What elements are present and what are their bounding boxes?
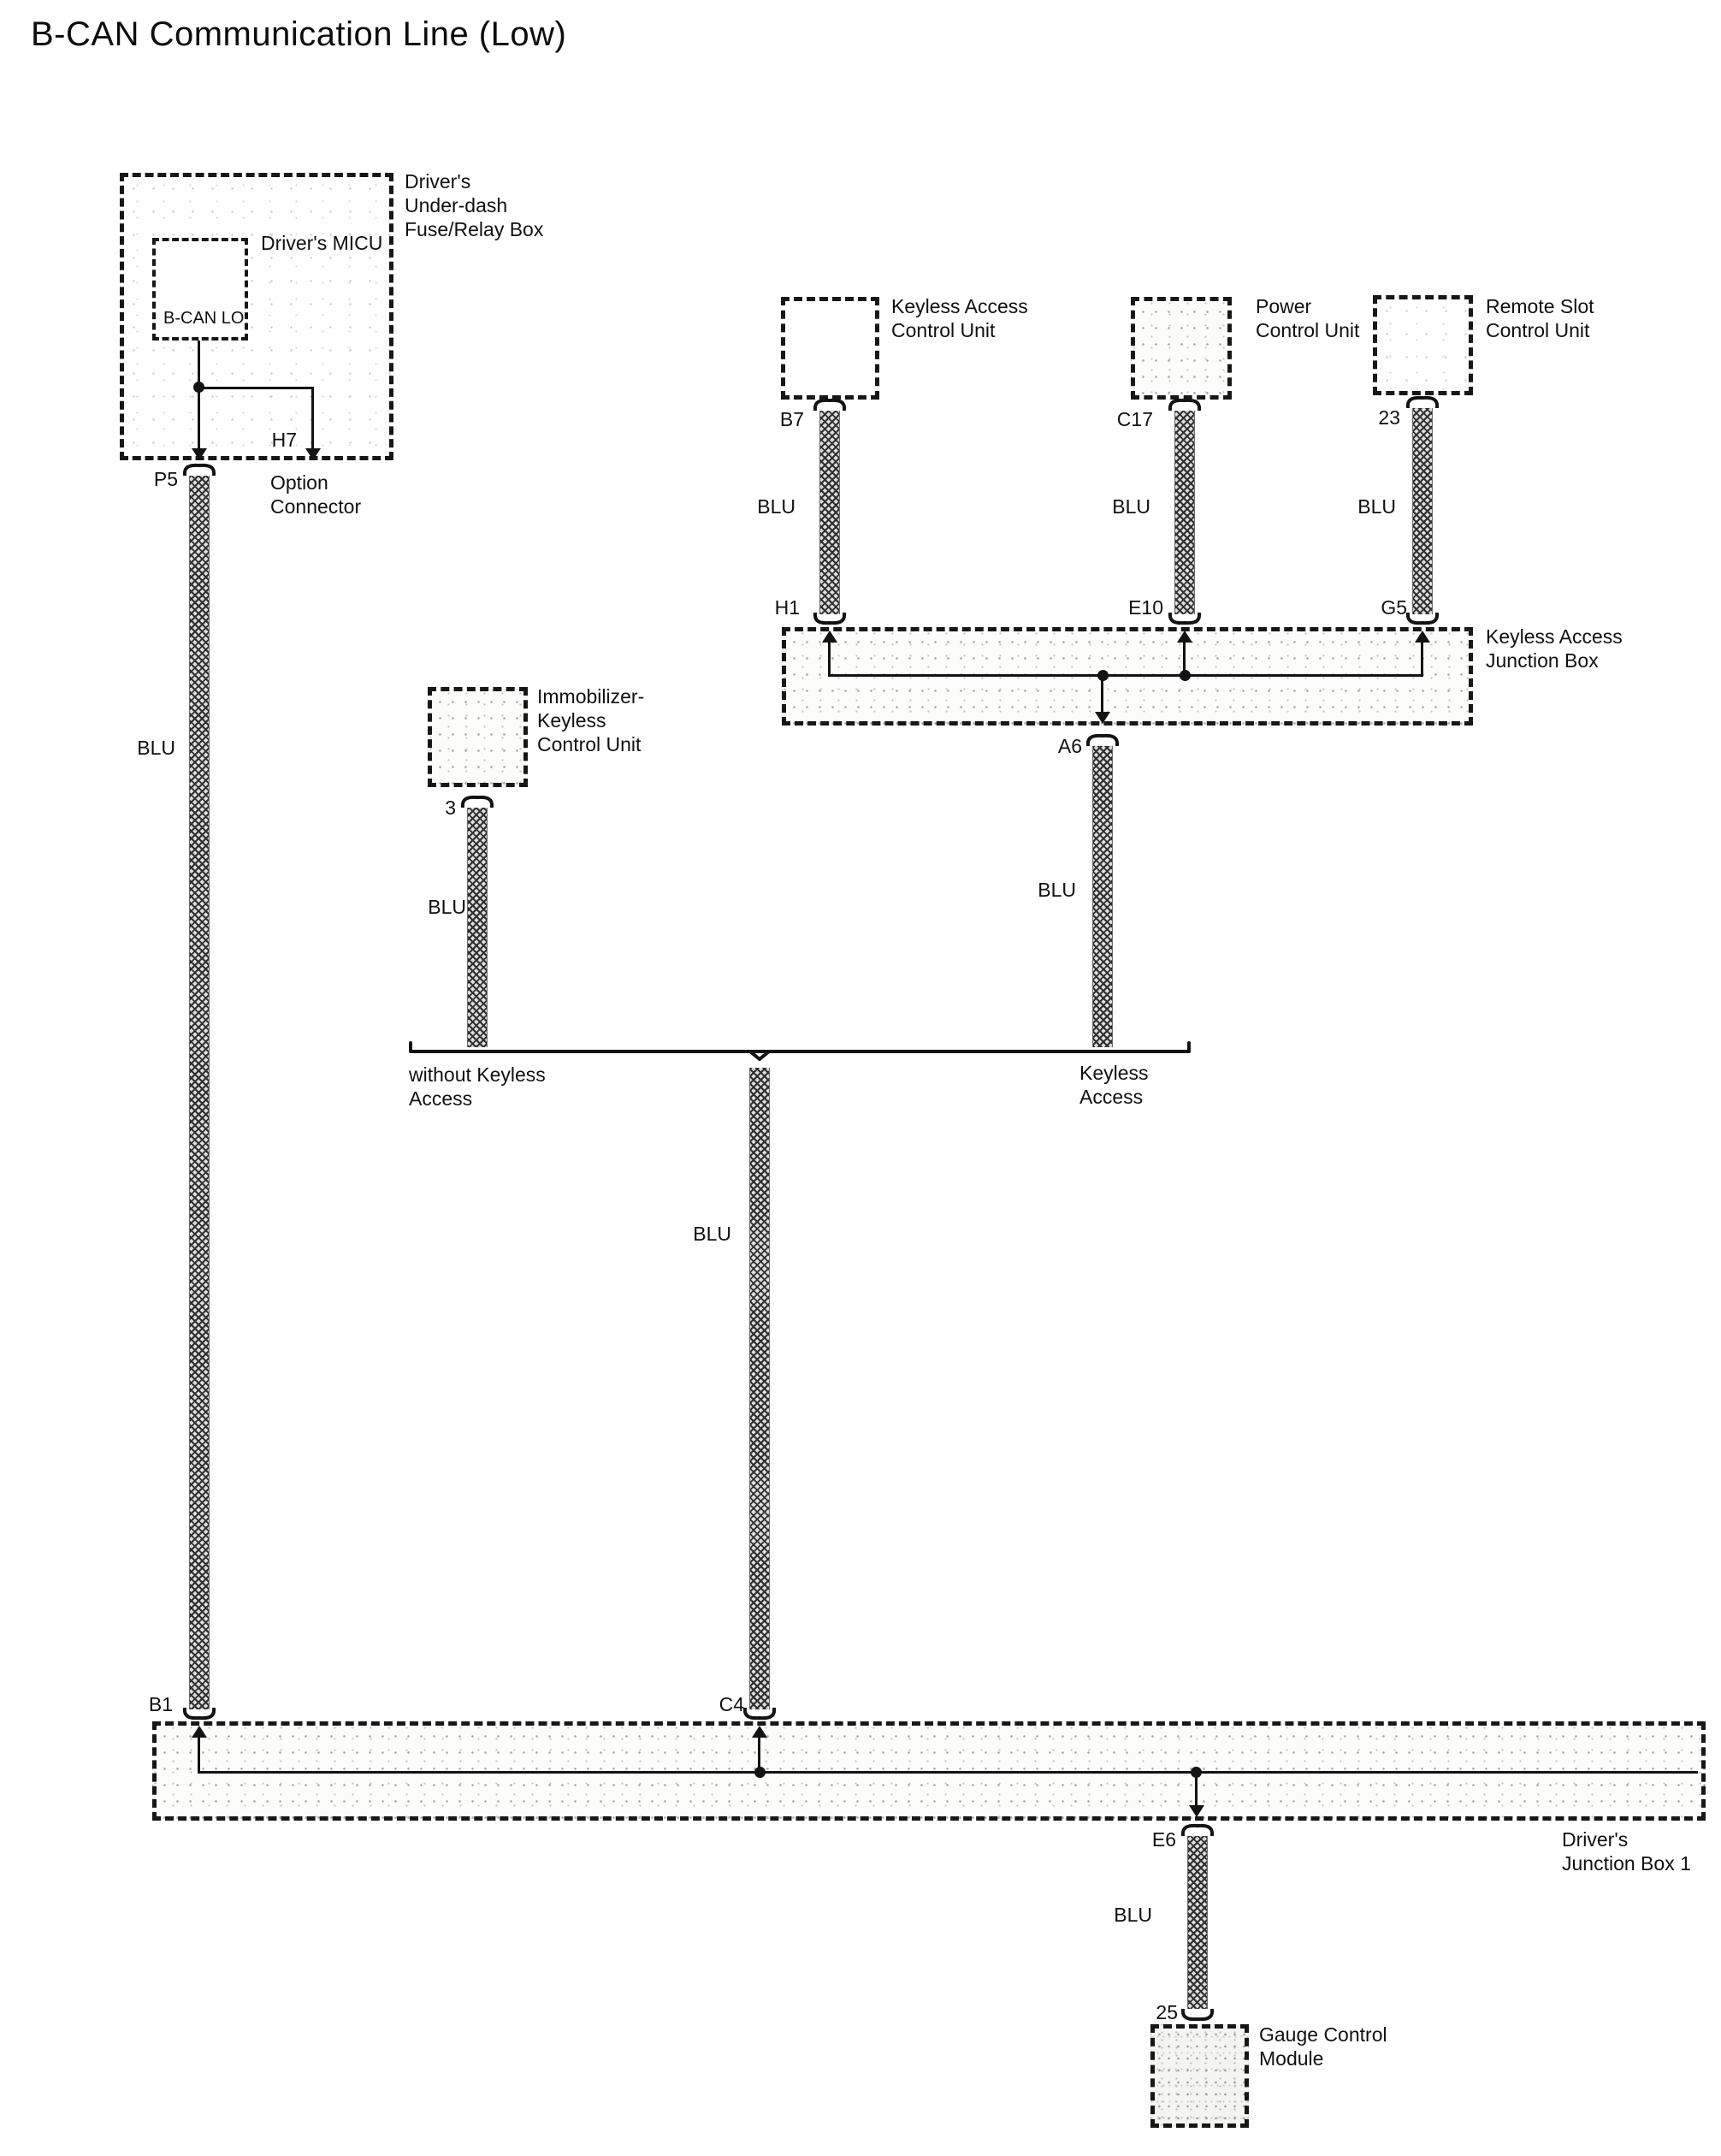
pin-label-p5: P5 bbox=[154, 467, 178, 491]
option-connector-label: Option Connector bbox=[270, 471, 361, 518]
drivers-micu-label: Driver's MICU bbox=[261, 231, 382, 255]
connector-crimp-icon bbox=[1180, 2009, 1215, 2023]
wire-e6-to-25 bbox=[1187, 1836, 1208, 2009]
signal-line bbox=[198, 387, 314, 389]
gauge-control-module-label: Gauge Control Module bbox=[1259, 2023, 1387, 2070]
connector-crimp-icon bbox=[1168, 613, 1202, 626]
wire-a6-to-branch bbox=[1092, 746, 1113, 1047]
gauge-control-module-box bbox=[1150, 2024, 1249, 2128]
pin-label-g5: G5 bbox=[1381, 595, 1407, 619]
drivers-junction-box-1-label: Driver's Junction Box 1 bbox=[1562, 1827, 1691, 1875]
branch-bus-end-hook bbox=[409, 1041, 412, 1051]
power-cu-label: Power Control Unit bbox=[1256, 294, 1359, 342]
bcan-lo-label: B-CAN LO bbox=[163, 308, 244, 329]
pin-label-c17: C17 bbox=[1117, 407, 1153, 431]
branch-bus-line bbox=[409, 1050, 1191, 1053]
pin-label-3: 3 bbox=[445, 796, 456, 820]
signal-line bbox=[1101, 676, 1103, 714]
wire-color-label: BLU bbox=[1112, 495, 1150, 518]
page-title: B-CAN Communication Line (Low) bbox=[31, 15, 566, 54]
wire-p5-to-b1 bbox=[189, 476, 210, 1709]
power-cu-box bbox=[1131, 297, 1232, 400]
connector-crimp-icon bbox=[1085, 732, 1120, 746]
wire-color-label: BLU bbox=[693, 1222, 731, 1246]
connector-crimp-icon bbox=[813, 397, 847, 411]
branch-notch-icon bbox=[749, 1051, 770, 1061]
wire-color-label: BLU bbox=[1357, 495, 1396, 518]
wire-pin3-to-branch bbox=[467, 808, 488, 1047]
wire-b7-to-h1 bbox=[819, 411, 840, 614]
junction-dot bbox=[1180, 670, 1191, 681]
pin-label-e6: E6 bbox=[1152, 1827, 1176, 1851]
branch-bus-end-hook bbox=[1187, 1041, 1191, 1051]
pin-label-h1: H1 bbox=[775, 595, 800, 619]
pin-label-b1: B1 bbox=[149, 1692, 173, 1716]
signal-line bbox=[828, 674, 1423, 677]
signal-line bbox=[1421, 641, 1423, 677]
wire-color-label: BLU bbox=[1038, 878, 1076, 902]
remote-slot-cu-label: Remote Slot Control Unit bbox=[1486, 294, 1594, 342]
pin-label-25: 25 bbox=[1156, 2000, 1178, 2024]
keyless-access-cu-box bbox=[781, 297, 879, 400]
arrow-down-icon bbox=[305, 448, 321, 460]
pin-label-23: 23 bbox=[1378, 406, 1400, 429]
pin-label-a6: A6 bbox=[1058, 734, 1082, 758]
keyless-access-cu-label: Keyless Access Control Unit bbox=[891, 294, 1028, 342]
pin-label-h7: H7 bbox=[272, 428, 297, 452]
wire-color-label: BLU bbox=[1114, 1903, 1152, 1927]
signal-line bbox=[828, 641, 831, 677]
connector-crimp-icon bbox=[182, 462, 216, 476]
signal-line bbox=[198, 1736, 200, 1774]
wire-color-label: BLU bbox=[137, 736, 175, 760]
pin-label-b7: B7 bbox=[780, 407, 804, 431]
fuse-relay-box-label: Driver's Under-dash Fuse/Relay Box bbox=[405, 169, 543, 241]
pin-label-c4: C4 bbox=[719, 1692, 744, 1716]
connector-crimp-icon bbox=[1168, 397, 1202, 411]
immobilizer-keyless-cu-box bbox=[428, 687, 528, 787]
arrow-down-icon bbox=[1189, 1805, 1204, 1817]
signal-line bbox=[311, 387, 314, 450]
wire-color-label: BLU bbox=[757, 495, 795, 518]
wire-23-to-g5 bbox=[1412, 408, 1433, 614]
wire-branch-to-c4 bbox=[749, 1068, 770, 1709]
connector-crimp-icon bbox=[182, 1708, 216, 1721]
keyless-access-junction-box-label: Keyless Access Junction Box bbox=[1486, 625, 1623, 672]
connector-crimp-icon bbox=[1405, 394, 1440, 408]
keyless-access-label: Keyless Access bbox=[1079, 1061, 1149, 1109]
signal-line bbox=[198, 387, 200, 450]
arrow-down-icon bbox=[1095, 712, 1110, 724]
remote-slot-cu-box bbox=[1373, 295, 1473, 395]
immobilizer-keyless-cu-label: Immobilizer- Keyless Control Unit bbox=[537, 684, 644, 756]
connector-crimp-icon bbox=[813, 613, 847, 626]
without-keyless-access-label: without Keyless Access bbox=[409, 1063, 546, 1111]
junction-dot bbox=[754, 1767, 766, 1778]
connector-crimp-icon bbox=[1180, 1822, 1215, 1836]
wire-c17-to-e10 bbox=[1174, 411, 1195, 614]
wiring-diagram-page: B-CAN Communication Line (Low) Driver's … bbox=[0, 0, 1721, 2156]
pin-label-e10: E10 bbox=[1128, 595, 1163, 619]
connector-crimp-icon bbox=[1405, 613, 1440, 626]
connector-crimp-icon bbox=[742, 1708, 777, 1721]
connector-crimp-icon bbox=[460, 794, 494, 808]
signal-line bbox=[198, 1771, 1698, 1774]
signal-line bbox=[1195, 1773, 1198, 1807]
wire-color-label: BLU bbox=[428, 895, 466, 919]
arrow-down-icon bbox=[192, 448, 207, 460]
